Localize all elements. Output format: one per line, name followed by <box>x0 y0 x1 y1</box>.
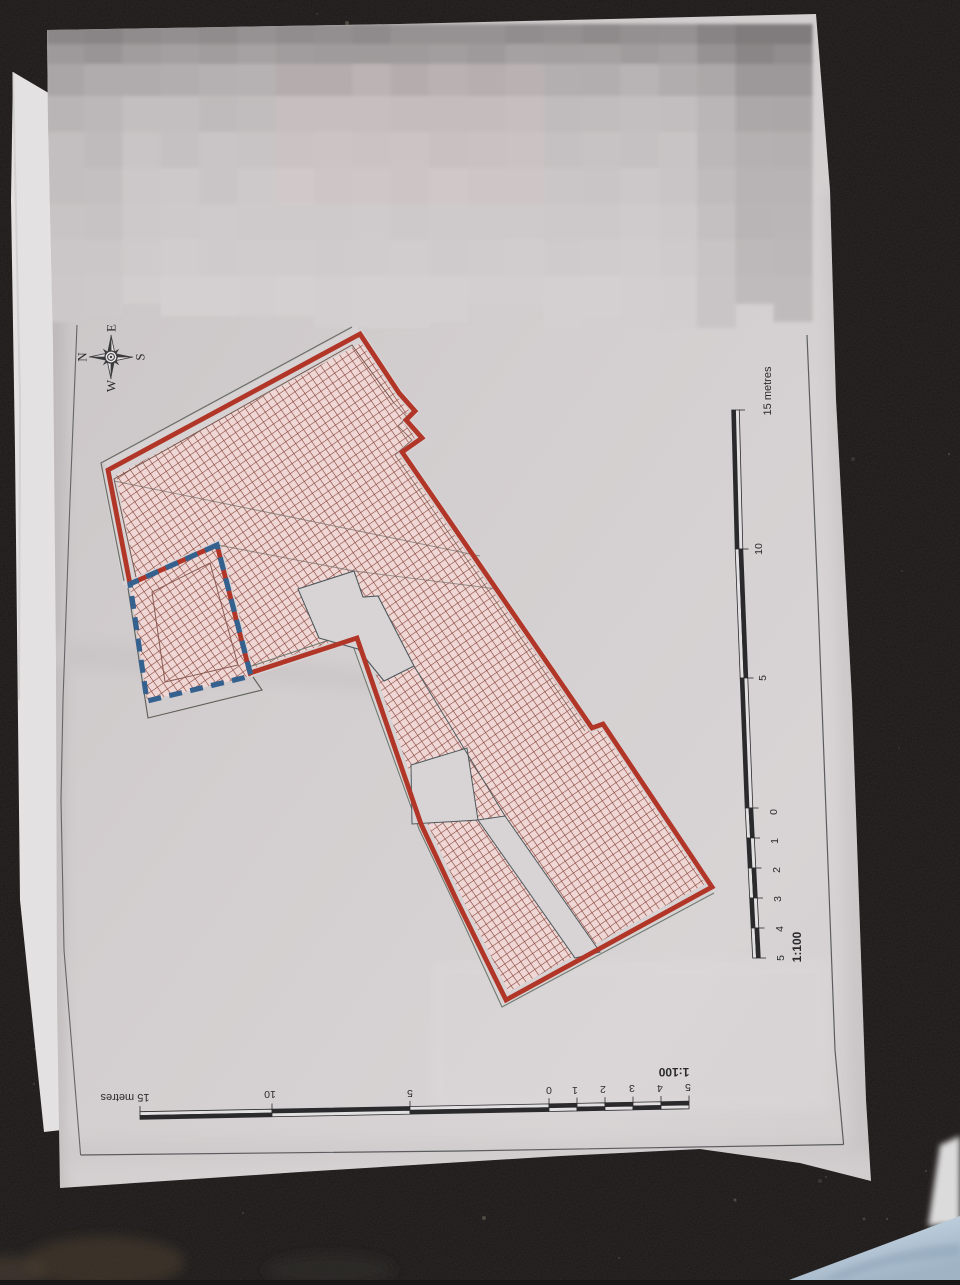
svg-text:W: W <box>104 379 119 392</box>
svg-text:10: 10 <box>753 543 765 555</box>
svg-text:1: 1 <box>769 838 781 844</box>
svg-text:1:100: 1:100 <box>658 1065 689 1079</box>
svg-text:E: E <box>104 324 119 332</box>
svg-text:0: 0 <box>546 1084 552 1096</box>
svg-text:2: 2 <box>771 867 783 873</box>
svg-text:S: S <box>133 353 148 360</box>
svg-text:15 metres: 15 metres <box>100 1091 149 1103</box>
svg-text:4: 4 <box>774 926 786 932</box>
svg-text:1: 1 <box>572 1084 578 1096</box>
svg-text:5: 5 <box>407 1087 413 1099</box>
svg-text:15 metres: 15 metres <box>762 366 774 415</box>
svg-text:N: N <box>75 352 90 362</box>
svg-text:3: 3 <box>629 1082 635 1094</box>
svg-text:10: 10 <box>264 1088 276 1100</box>
svg-text:4: 4 <box>657 1082 663 1094</box>
svg-text:5: 5 <box>775 955 787 961</box>
svg-text:2: 2 <box>600 1083 606 1095</box>
svg-text:3: 3 <box>772 896 784 902</box>
svg-text:1:100: 1:100 <box>790 931 804 962</box>
svg-text:5: 5 <box>685 1081 691 1093</box>
svg-text:5: 5 <box>757 675 769 681</box>
svg-text:0: 0 <box>768 809 780 815</box>
